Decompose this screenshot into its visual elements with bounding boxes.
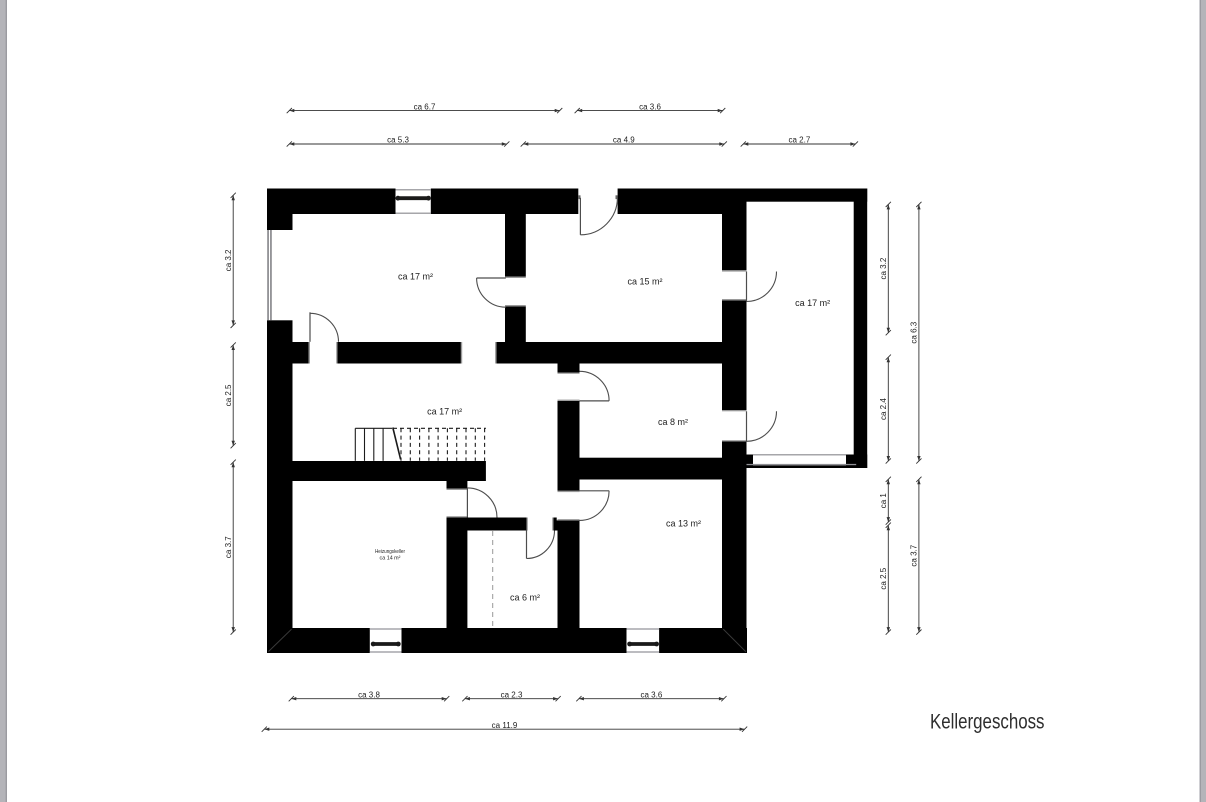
svg-text:ca 17 m²: ca 17 m² — [795, 298, 830, 308]
svg-text:ca 11.9: ca 11.9 — [492, 721, 518, 730]
svg-text:ca 14 m²: ca 14 m² — [380, 556, 401, 562]
svg-text:ca 2.7: ca 2.7 — [789, 136, 811, 145]
svg-text:ca 15 m²: ca 15 m² — [627, 277, 662, 287]
svg-text:ca 2.3: ca 2.3 — [501, 690, 523, 699]
svg-text:ca 3.7: ca 3.7 — [910, 544, 919, 566]
svg-text:ca 1: ca 1 — [879, 493, 888, 509]
svg-text:Heizungskeller: Heizungskeller — [375, 549, 405, 555]
svg-text:ca 4.9: ca 4.9 — [613, 136, 635, 145]
svg-text:ca 3.8: ca 3.8 — [358, 690, 380, 699]
svg-text:ca 6.7: ca 6.7 — [414, 102, 436, 111]
svg-text:ca 3.6: ca 3.6 — [639, 102, 661, 111]
svg-text:ca 6.3: ca 6.3 — [910, 321, 919, 343]
svg-text:ca 2.4: ca 2.4 — [879, 398, 888, 420]
svg-text:ca 2.5: ca 2.5 — [879, 567, 888, 589]
svg-text:ca 8 m²: ca 8 m² — [658, 417, 688, 427]
svg-text:ca 3.6: ca 3.6 — [641, 690, 663, 699]
svg-text:ca 5.3: ca 5.3 — [387, 136, 409, 145]
svg-text:Kellergeschoss: Kellergeschoss — [930, 710, 1045, 734]
svg-text:ca 13 m²: ca 13 m² — [666, 519, 701, 529]
svg-text:ca 6 m²: ca 6 m² — [510, 593, 540, 603]
svg-text:ca 3.2: ca 3.2 — [879, 257, 888, 279]
svg-text:ca 3.2: ca 3.2 — [224, 249, 233, 271]
svg-text:ca 17 m²: ca 17 m² — [427, 406, 462, 416]
svg-text:ca 2.5: ca 2.5 — [224, 384, 233, 406]
svg-text:ca 17 m²: ca 17 m² — [398, 272, 433, 282]
svg-text:ca 3.7: ca 3.7 — [224, 536, 233, 558]
